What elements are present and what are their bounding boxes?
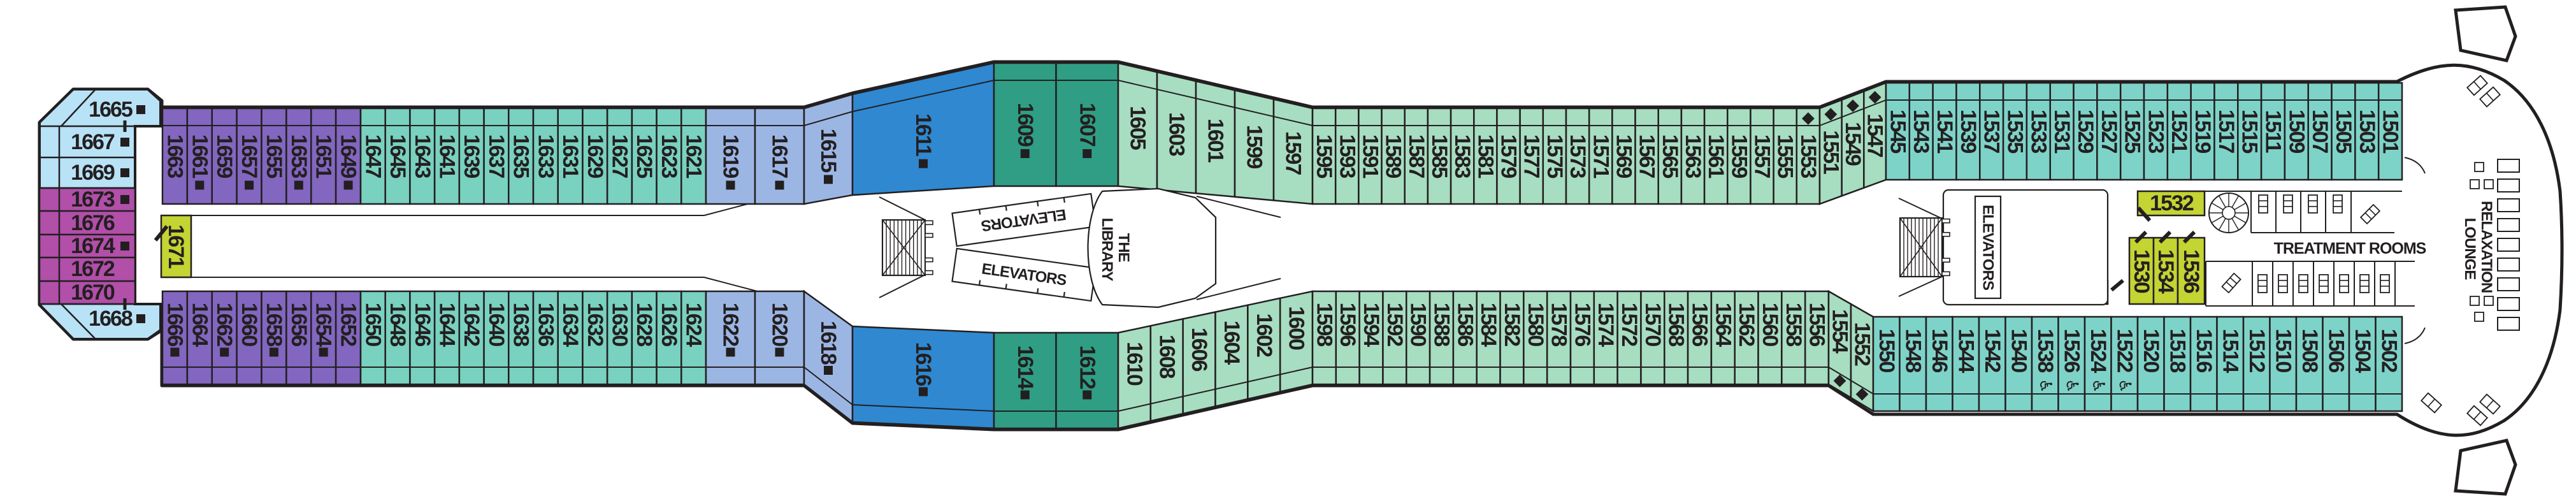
cabin-1562-label: 1562 [1734,303,1759,347]
massage-table [2333,195,2342,213]
cabin-1598-label: 1598 [1312,303,1336,347]
cabin-1541-label: 1541 [1932,110,1957,154]
massage-table [2360,275,2369,293]
cabin-1663-label: 1663 [162,134,187,178]
cabin-1510-label: 1510 [2271,329,2295,373]
cabin-1532-label: 1532 [2150,191,2194,215]
bow-fin-top [2456,7,2515,61]
cabin-1567-label: 1567 [1635,134,1659,178]
cabin-1653-label: 1653 [287,134,311,178]
cabin-1548-label: 1548 [1901,329,1925,373]
wheelchair-accessible-icon: ♿ [2036,379,2055,393]
massage-table [2278,275,2287,293]
cabin-1644-label: 1644 [435,303,459,347]
wheelchair-accessible-icon: ♿ [2062,379,2081,393]
cabin-1591-label: 1591 [1358,134,1382,178]
cabin-1506-label: 1506 [2324,329,2348,373]
cabin-1537-label: 1537 [1980,110,2004,154]
cabin-1609-label: 1609 [1013,103,1037,147]
suite-square-marker [120,195,129,204]
cabin-1655-label: 1655 [262,134,286,178]
cabin-1654-label: 1654 [312,303,336,347]
suite-square-marker [245,181,254,190]
cabin-1592-label: 1592 [1383,303,1407,347]
cabin-1642-label: 1642 [459,303,484,347]
cabin-1611-label: 1611 [911,113,935,156]
suite-square-marker [170,348,179,357]
cabin-1581-label: 1581 [1473,134,1497,178]
cabin-1521-label: 1521 [2167,110,2191,154]
cabin-1601-label: 1601 [1204,119,1228,163]
cabin-1667-label: 1667 [71,130,115,154]
cabin-1504-label: 1504 [2350,329,2375,374]
cabin-1669-label: 1669 [71,161,115,185]
lounger [2498,179,2519,192]
cabin-1673-label: 1673 [71,187,115,212]
cabin-1643-label: 1643 [410,134,435,178]
cabin-1605-label: 1605 [1126,106,1150,150]
side-table [2484,180,2493,189]
cabin-1575-label: 1575 [1543,134,1567,178]
cabin-1619-label: 1619 [719,134,743,178]
side-table [2475,163,2484,171]
cabin-1538-label: 1538 [2033,329,2057,373]
lounger [2498,258,2519,271]
cabin-1635-label: 1635 [509,134,533,178]
cabin-1588-label: 1588 [1430,303,1454,347]
cabin-1599-label: 1599 [1242,125,1267,169]
cabin-1628-label: 1628 [632,303,656,347]
cabin-1566-label: 1566 [1688,303,1712,347]
cabin-1525-label: 1525 [2120,110,2145,154]
massage-table [2319,275,2328,293]
cabin-1560-label: 1560 [1758,303,1782,347]
suite-square-marker [726,348,735,357]
stair-rail [925,233,933,237]
cabin-1631-label: 1631 [558,134,582,178]
cabin-1603-label: 1603 [1165,112,1189,156]
suite-square-marker [344,181,353,190]
cabin-1615-label: 1615 [816,129,840,173]
stair-rail [925,221,933,224]
suite-square-marker [136,105,145,114]
cabin-1621-label: 1621 [682,134,706,178]
suite-square-marker [195,181,204,190]
cabin-1547-label: 1547 [1863,113,1887,157]
suite-square-marker [775,181,784,190]
stair-rail [1942,272,1950,275]
cabin-1662-label: 1662 [212,303,236,347]
suite-square-marker [1083,391,1091,400]
cabin-1649-label: 1649 [336,134,361,178]
cabin-1640-label: 1640 [484,303,508,347]
wheelchair-accessible-icon: ♿ [2115,379,2134,393]
cabin-1552-label: 1552 [1850,322,1874,366]
cabin-1582-label: 1582 [1500,303,1524,347]
cabin-1651-label: 1651 [312,134,336,178]
massage-table [2284,195,2292,213]
lounger [2498,317,2519,330]
lounger [2498,278,2519,291]
cabin-1657-label: 1657 [237,134,261,178]
cabin-1589-label: 1589 [1381,134,1406,178]
cabin-1604-label: 1604 [1220,321,1244,365]
lounger [2498,159,2519,172]
cabin-1511-label: 1511 [2261,110,2285,153]
cabin-1572-label: 1572 [1617,303,1641,347]
cabin-1520-label: 1520 [2139,329,2163,373]
cabin-1539-label: 1539 [1956,110,1980,154]
cabin-1647-label: 1647 [361,134,385,178]
cabin-1536-label: 1536 [2179,249,2203,293]
cabin-1594-label: 1594 [1359,303,1383,347]
suite-square-marker [824,175,833,184]
wheelchair-accessible-icon: ♿ [2089,379,2108,393]
cabin-1600-label: 1600 [1284,306,1309,350]
suite-square-marker [1021,149,1030,158]
cabin-1610-label: 1610 [1122,342,1146,386]
cabin-1549-label: 1549 [1841,122,1865,166]
cabin-1565-label: 1565 [1658,134,1682,178]
cabin-1542-label: 1542 [1980,329,2004,373]
deck-plan-canvas: 166516671669167316761674167216701668 166… [0,0,2576,501]
cabin-1606-label: 1606 [1187,328,1211,372]
cabin-1585-label: 1585 [1427,134,1451,178]
cabin-1524-label: 1524 [2086,329,2110,374]
cabin-1568-label: 1568 [1664,303,1688,347]
elevators-label-forward: ELEVATORS [1980,205,1997,291]
cabin-1514-label: 1514 [2218,329,2242,374]
cabin-1579-label: 1579 [1497,134,1521,178]
cabin-1659-label: 1659 [212,134,236,178]
side-table [2475,312,2484,321]
cabin-1502-label: 1502 [2377,329,2401,373]
cabin-1574-label: 1574 [1594,303,1618,347]
cabin-1543-label: 1543 [1909,110,1933,154]
cabin-1668-label: 1668 [89,307,133,331]
cabin-1674-label: 1674 [71,234,115,258]
cabin-1544-label: 1544 [1954,329,1978,374]
cabin-1676-label: 1676 [71,211,115,235]
lounger [2498,219,2519,231]
cabin-1625-label: 1625 [632,134,656,178]
cabin-1517-label: 1517 [2214,110,2238,154]
cabin-1666-label: 1666 [162,303,187,347]
cabin-1646-label: 1646 [410,303,435,347]
cabin-1529-label: 1529 [2073,110,2097,154]
cabin-1527-label: 1527 [2097,110,2121,154]
cabin-1612-label: 1612 [1075,345,1099,389]
cabin-1535-label: 1535 [2003,110,2027,154]
treatment-rooms-label: TREATMENT ROOMS [2274,240,2426,258]
cabin-1584-label: 1584 [1476,303,1500,347]
cabin-1596-label: 1596 [1335,303,1360,347]
cabin-1512-label: 1512 [2245,329,2269,373]
cabin-1658-label: 1658 [262,303,286,347]
cabin-1633-label: 1633 [533,134,558,178]
midship-lobby [882,220,933,275]
cabin-1557-label: 1557 [1750,134,1774,178]
lounger [2498,298,2519,310]
cabin-1555-label: 1555 [1773,134,1797,178]
cabin-1522-label: 1522 [2112,329,2136,373]
cabin-1570-label: 1570 [1641,303,1665,347]
cabin-1577-label: 1577 [1520,134,1544,178]
cabin-1507-label: 1507 [2308,110,2332,154]
cabin-1586-label: 1586 [1453,303,1477,347]
cabin-1558-label: 1558 [1781,303,1806,347]
cabin-1583-label: 1583 [1450,134,1474,178]
suite-square-marker [775,348,784,357]
suite-square-marker [270,348,278,357]
cabin-1629-label: 1629 [583,134,607,178]
cabin-1573-label: 1573 [1565,134,1590,178]
suite-square-marker [120,242,129,250]
cabin-1526-label: 1526 [2059,329,2083,373]
cabin-1534-label: 1534 [2154,249,2178,294]
massage-table [2380,275,2389,293]
cabin-1533-label: 1533 [2026,110,2050,154]
side-table [2484,296,2493,305]
cabin-1614-label: 1614 [1013,345,1037,390]
suite-square-marker [220,348,229,357]
cabin-1531-label: 1531 [2050,110,2074,154]
cabin-1632-label: 1632 [583,303,607,347]
lounger [2498,199,2519,212]
cabin-1641-label: 1641 [435,134,459,178]
side-table [2470,180,2479,189]
cabin-1660-label: 1660 [237,303,261,347]
cabin-1578-label: 1578 [1547,303,1571,347]
spiral-stair-core [2222,207,2235,219]
cabin-1515-label: 1515 [2238,110,2262,154]
cabin-1516-label: 1516 [2192,329,2216,373]
massage-table [2259,195,2268,213]
suite-square-marker [1083,149,1091,158]
suite-square-marker [919,388,928,396]
cabin-1645-label: 1645 [385,134,410,178]
cabin-1593-label: 1593 [1335,134,1359,178]
cabin-1639-label: 1639 [459,134,484,178]
cabin-1597-label: 1597 [1281,131,1306,175]
massage-table [2258,275,2267,293]
cabin-1580-label: 1580 [1523,303,1548,347]
cabin-1622-label: 1622 [719,303,743,347]
cabin-1638-label: 1638 [509,303,533,347]
stair-rail [1942,219,1950,223]
cabin-1523-label: 1523 [2143,110,2168,154]
cabin-1648-label: 1648 [385,303,410,347]
cabin-1564-label: 1564 [1711,303,1735,347]
cabin-1545-label: 1545 [1885,110,1910,154]
cabin-1563-label: 1563 [1681,134,1705,178]
cabin-1616-label: 1616 [911,342,935,386]
cabin-1550-label: 1550 [1874,329,1899,373]
cabin-1624-label: 1624 [682,303,706,347]
forward-elevator-lobby [1943,190,2108,305]
cabin-1540-label: 1540 [2006,329,2031,373]
cabin-1561-label: 1561 [1704,134,1728,178]
cabin-1661-label: 1661 [187,134,212,178]
cabin-1576-label: 1576 [1570,303,1594,347]
cabin-1670-label: 1670 [71,280,115,305]
suite-square-marker [120,168,129,177]
suite-square-marker [136,314,145,323]
cabin-1664-label: 1664 [187,303,212,347]
cabin-1503-label: 1503 [2355,110,2379,154]
cabin-1626-label: 1626 [657,303,681,347]
massage-table [2299,275,2308,293]
suite-square-marker [319,348,328,357]
cabin-1617-label: 1617 [768,134,792,178]
cabin-1618-label: 1618 [816,321,840,365]
cabin-1656-label: 1656 [287,303,311,347]
cabin-1595-label: 1595 [1312,134,1336,178]
cabin-1553-label: 1553 [1796,134,1820,178]
suite-square-marker [919,159,928,168]
cabin-1671-label: 1671 [164,224,188,268]
massage-table [2340,275,2349,293]
cabin-1519-label: 1519 [2191,110,2215,154]
cabin-1634-label: 1634 [558,303,582,347]
cabin-1650-label: 1650 [361,303,385,347]
massage-table [2308,195,2317,213]
cabin-1602-label: 1602 [1252,313,1276,357]
cabin-1508-label: 1508 [2298,329,2322,373]
lounger [2498,238,2519,251]
suite-square-marker [120,138,129,147]
cabin-1501-label: 1501 [2378,110,2403,154]
stair-rail [1942,258,1950,262]
bow-fin-bottom [2456,440,2515,494]
suite-square-marker [824,366,833,375]
cabin-1627-label: 1627 [608,134,632,178]
cabin-1607-label: 1607 [1075,103,1099,147]
cabin-1518-label: 1518 [2165,329,2189,373]
cabin-1546-label: 1546 [1927,329,1952,373]
cabin-1608-label: 1608 [1155,335,1179,379]
stair-rail [1942,233,1950,236]
cabin-1551-label: 1551 [1818,130,1843,174]
side-table [2470,296,2479,305]
cabin-1623-label: 1623 [657,134,681,178]
cabin-1556-label: 1556 [1805,303,1829,347]
stair-rail [925,271,933,275]
suite-square-marker [726,181,735,190]
cabin-1505-label: 1505 [2331,110,2356,154]
cabin-1590-label: 1590 [1406,303,1430,347]
cabin-1569-label: 1569 [1611,134,1636,178]
cabin-1620-label: 1620 [768,303,792,347]
suite-square-marker [1021,391,1030,400]
cabin-1672-label: 1672 [71,257,115,281]
stair-rail [925,258,933,262]
deck-plan: 166516671669167316761674167216701668 166… [0,0,2576,501]
suite-square-marker [294,181,303,190]
cabin-1530-label: 1530 [2129,249,2154,293]
cabin-1630-label: 1630 [608,303,632,347]
cabin-1665-label: 1665 [89,98,133,122]
cabin-1637-label: 1637 [484,134,508,178]
cabin-1509-label: 1509 [2284,110,2308,154]
cabin-1554-label: 1554 [1828,309,1852,354]
cabin-1652-label: 1652 [336,303,361,347]
cabin-1587-label: 1587 [1404,134,1428,178]
cabin-1571-label: 1571 [1588,134,1613,178]
cabin-1636-label: 1636 [533,303,558,347]
cabin-1559-label: 1559 [1727,134,1751,178]
